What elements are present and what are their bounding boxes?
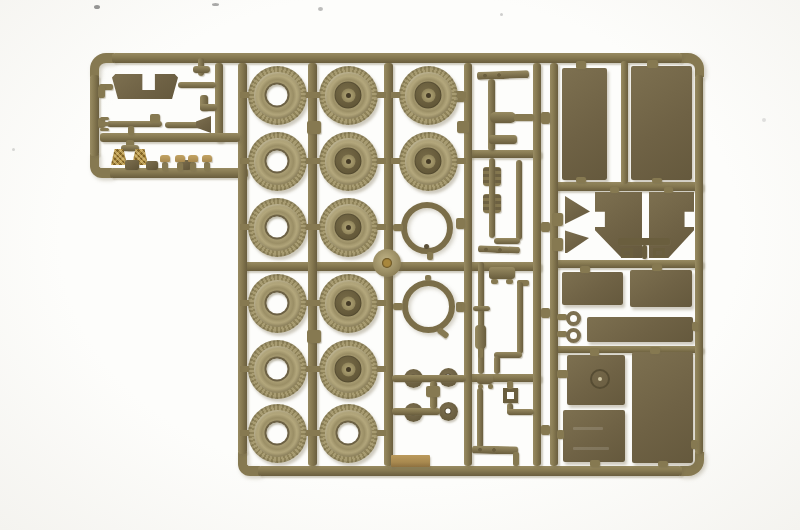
wheel-hub-hole [346,367,351,372]
mount-foot [488,384,493,389]
tire-part [248,66,307,125]
tire-sidewall [325,410,372,457]
rod-part [507,409,534,415]
barrel-part [475,325,486,349]
sprue-gate-tab [557,430,564,439]
sprue-gate-tab [576,61,586,69]
spare-tire-ring-part [402,280,455,333]
bracket-part [477,374,493,384]
wheel-hubcap [421,88,435,102]
sprue-gate-tab [652,264,662,271]
wheel-hubcap [341,154,355,168]
tire-center-hole [267,85,288,106]
wheel-hub [335,356,362,383]
tire-sidewall [254,72,301,119]
spare-mount-panel-part [567,355,625,405]
sprue-gate-tab [664,187,673,193]
sprue-gate-tab [590,460,600,467]
sprue-gate-tab [552,213,563,226]
eyelet-ring-part [566,311,581,326]
rod-part [494,356,500,374]
sprue-photo [0,0,800,530]
sprue-gate-tab [393,224,403,231]
leaf-spring-part [472,446,518,455]
wheel-part [319,274,378,333]
sprue-gate-tab [580,266,590,273]
mount-foot [491,279,498,284]
wheel-hubcap [341,362,355,376]
wheel-hub [335,290,362,317]
tire-center-hole [267,423,288,444]
wheel-hub-hole [346,225,351,230]
sprue-gate-tab [513,452,519,466]
crossbar-part [473,306,490,311]
tire-sidewall [254,280,301,327]
body-panel-part [631,66,692,180]
spare-mount-center [598,377,602,381]
rod-part [477,388,483,448]
mount-foot [506,279,513,284]
axle-clamp-part [653,248,665,258]
wheel-hub [335,82,362,109]
wheel-part [319,198,378,257]
tire-sidewall [254,138,301,185]
sprue-gate-tab [610,187,619,193]
sprue-gate-tab [424,244,429,249]
tire-sidewall [325,204,372,251]
sprue-gate-tab [590,348,599,356]
wheel-hub [335,214,362,241]
tire-sidewall [325,280,372,327]
wheel-hubcap [341,220,355,234]
tire-center-hole [267,217,288,238]
muffler-part [490,112,516,123]
eyelet-ring-part [566,328,581,343]
body-panel-part [563,410,625,462]
sprue-runner [392,408,440,415]
wheel-hub [335,148,362,175]
bracket-part [489,135,517,144]
body-panel-part [587,317,693,342]
tire-center-hole [267,359,288,380]
small-disc-part [439,402,458,421]
wheel-hub-hole [346,93,351,98]
wheel-hubcap [341,88,355,102]
tire-sidewall [254,410,301,457]
rod-part [517,282,523,354]
wheel-hub-hole [426,93,431,98]
body-panel-part [632,352,693,463]
tire-part [248,274,307,333]
body-panel-part [562,68,607,180]
rod-part [494,238,520,244]
square-ring-part [503,388,518,403]
wheel-hub-hole [426,159,431,164]
wheel-hub-hole [346,159,351,164]
tire-sidewall [254,204,301,251]
wheel-hub [415,148,442,175]
tire-sidewall [405,72,452,119]
axle-post [642,245,647,259]
tire-part [248,404,307,463]
sprue-gate-tab [426,386,440,397]
tire-sidewall [254,346,301,393]
sprue-gate-tab [652,178,662,183]
panel-detail-line [573,427,603,430]
panel-detail-line [573,447,609,450]
wheel-part [319,132,378,191]
sprue-gate-tab [650,347,660,354]
sprue-gate-tab [647,60,658,68]
wheel-hubcap [421,154,435,168]
engine-mount-part [489,267,515,279]
tire-part [248,132,307,191]
tire-part [248,198,307,257]
wheel-part [319,340,378,399]
sprue-gate-tab [427,252,433,260]
axle-part [618,238,670,245]
rod-part [516,160,522,240]
body-panel-part [562,272,623,305]
body-panel-part [630,270,692,307]
tire-sidewall [325,72,372,119]
axle-clamp-part [621,248,633,258]
rod-part [489,158,495,238]
sprue-gate-tab [507,381,513,389]
sprue-gate-tab [691,440,697,449]
sprue-runner [392,375,466,382]
tire-part [319,404,378,463]
flat-plate-part [391,455,430,467]
tire-part [248,340,307,399]
leaf-spring-part [478,245,520,253]
wheel-hub [415,82,442,109]
tire-sidewall [325,346,372,393]
tire-center-hole [338,423,359,444]
tire-sidewall [325,138,372,185]
sprue-gate-tab [552,238,563,251]
sprue-gate-tab [557,370,568,378]
hub-dome-part [373,249,401,277]
sprue-gate-tab [393,303,403,310]
tire-sidewall [405,138,452,185]
tire-center-hole [267,151,288,172]
barrel-tip [478,348,483,358]
sprue-gate-tab [658,461,668,467]
sprue-gate-tab [514,114,534,121]
wheel-hubcap [341,296,355,310]
sprue-gate-tab [425,275,431,281]
wheel-part [399,132,458,191]
sprue-gate-tab [692,322,698,331]
sprue-gate-tab [576,177,586,183]
tire-center-hole [267,293,288,314]
wheel-part [319,66,378,125]
wheel-part [399,66,458,125]
wheel-hub-hole [346,301,351,306]
